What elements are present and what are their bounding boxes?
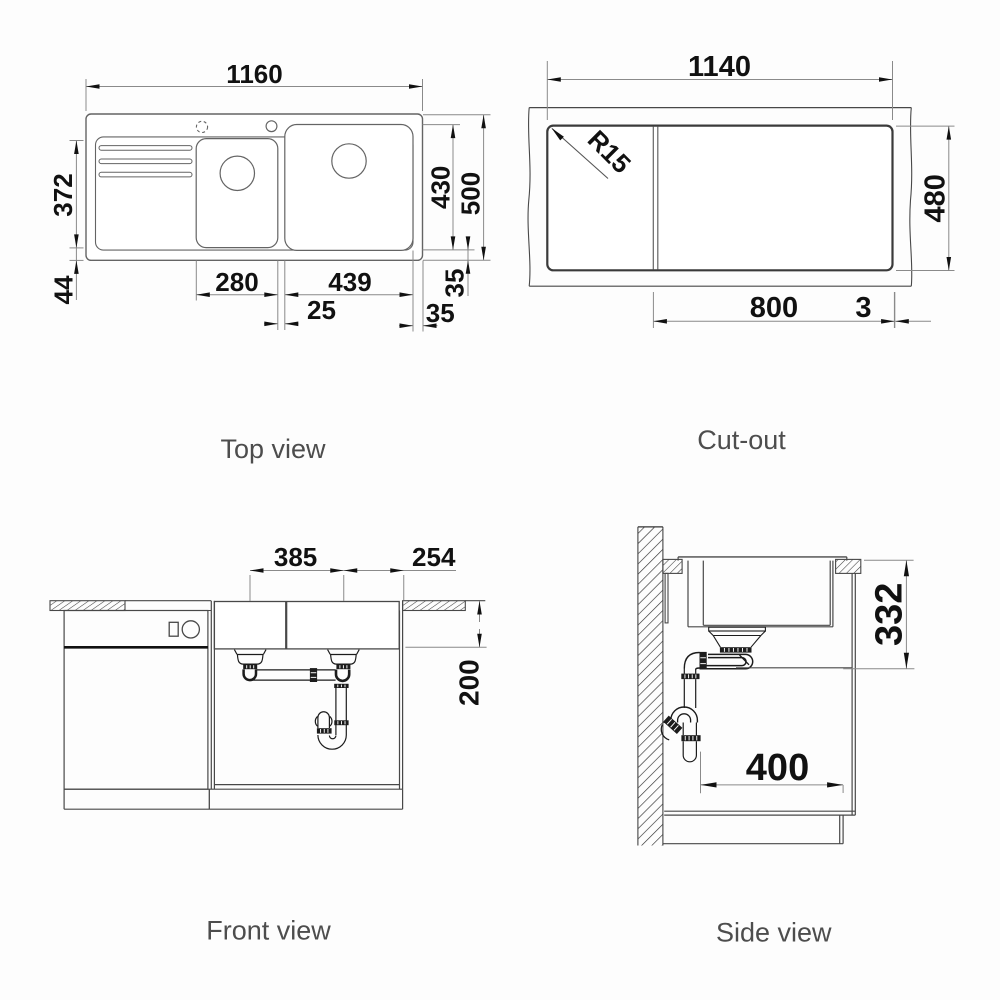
- svg-text:332: 332: [869, 583, 911, 646]
- svg-text:372: 372: [48, 173, 78, 216]
- svg-text:25: 25: [307, 295, 336, 325]
- svg-text:500: 500: [455, 172, 485, 215]
- svg-text:385: 385: [274, 542, 317, 572]
- svg-text:200: 200: [453, 659, 484, 706]
- svg-text:280: 280: [215, 267, 258, 297]
- svg-text:439: 439: [328, 267, 371, 297]
- svg-text:35: 35: [426, 298, 455, 328]
- svg-text:430: 430: [426, 166, 456, 209]
- svg-text:480: 480: [919, 174, 951, 222]
- svg-text:3: 3: [855, 292, 871, 324]
- svg-text:35: 35: [440, 269, 470, 298]
- svg-text:Cut-out: Cut-out: [697, 425, 786, 455]
- svg-text:Front view: Front view: [206, 916, 331, 946]
- svg-text:44: 44: [49, 275, 79, 304]
- svg-text:400: 400: [746, 747, 809, 789]
- svg-text:Side view: Side view: [716, 918, 832, 948]
- svg-text:254: 254: [412, 542, 456, 572]
- svg-text:800: 800: [750, 292, 798, 324]
- svg-text:1160: 1160: [226, 59, 282, 89]
- svg-text:Top view: Top view: [220, 434, 326, 464]
- svg-text:1140: 1140: [688, 51, 751, 83]
